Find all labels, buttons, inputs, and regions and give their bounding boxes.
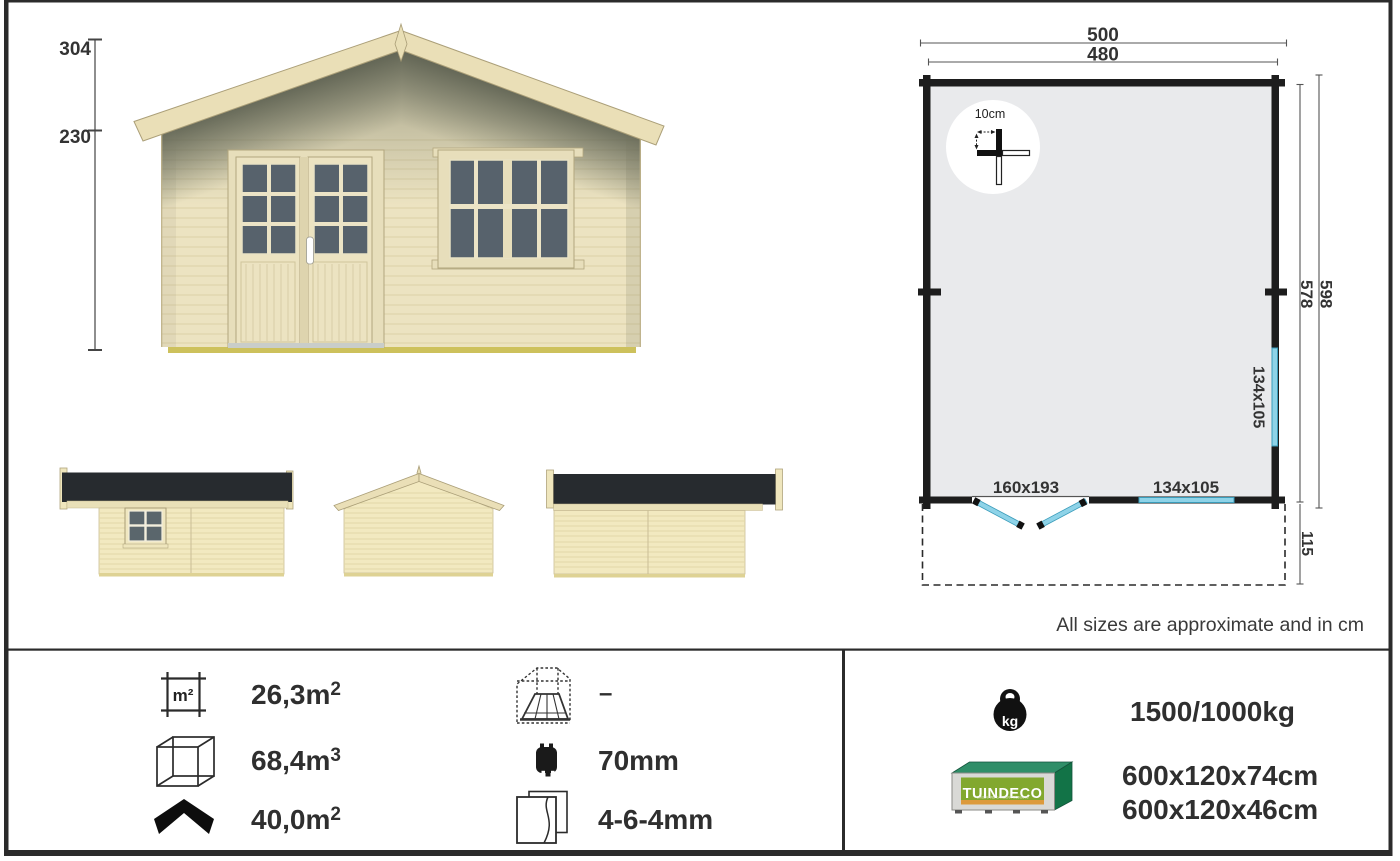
svg-text:TUINDECO: TUINDECO	[963, 786, 1043, 802]
svg-text:304: 304	[59, 39, 91, 60]
svg-text:kg: kg	[1002, 713, 1018, 729]
svg-text:598: 598	[1317, 280, 1336, 308]
svg-text:1500/1000kg: 1500/1000kg	[1130, 696, 1295, 727]
svg-text:68,4m3: 68,4m3	[251, 745, 341, 776]
svg-text:600x120x74cm: 600x120x74cm	[1122, 760, 1318, 791]
svg-text:10cm: 10cm	[975, 107, 1006, 121]
svg-text:40,0m2: 40,0m2	[251, 804, 341, 835]
svg-text:500: 500	[1087, 25, 1119, 46]
svg-text:All sizes are approximate and: All sizes are approximate and in cm	[1056, 614, 1364, 636]
svg-text:134x105: 134x105	[1153, 478, 1219, 497]
svg-text:m²: m²	[173, 686, 194, 705]
svg-text:115: 115	[1298, 531, 1315, 556]
svg-text:–: –	[599, 680, 612, 707]
svg-text:70mm: 70mm	[598, 745, 679, 776]
svg-text:600x120x46cm: 600x120x46cm	[1122, 794, 1318, 825]
svg-text:4-6-4mm: 4-6-4mm	[598, 804, 713, 835]
svg-text:230: 230	[59, 127, 91, 148]
svg-text:GREEN AND GARDEN PRODUCTS: GREEN AND GARDEN PRODUCTS	[976, 796, 1028, 800]
svg-text:160x193: 160x193	[993, 478, 1059, 497]
svg-text:26,3m2: 26,3m2	[251, 679, 341, 710]
svg-text:578: 578	[1297, 280, 1316, 308]
svg-text:134x105: 134x105	[1250, 366, 1267, 428]
svg-text:480: 480	[1087, 45, 1119, 66]
